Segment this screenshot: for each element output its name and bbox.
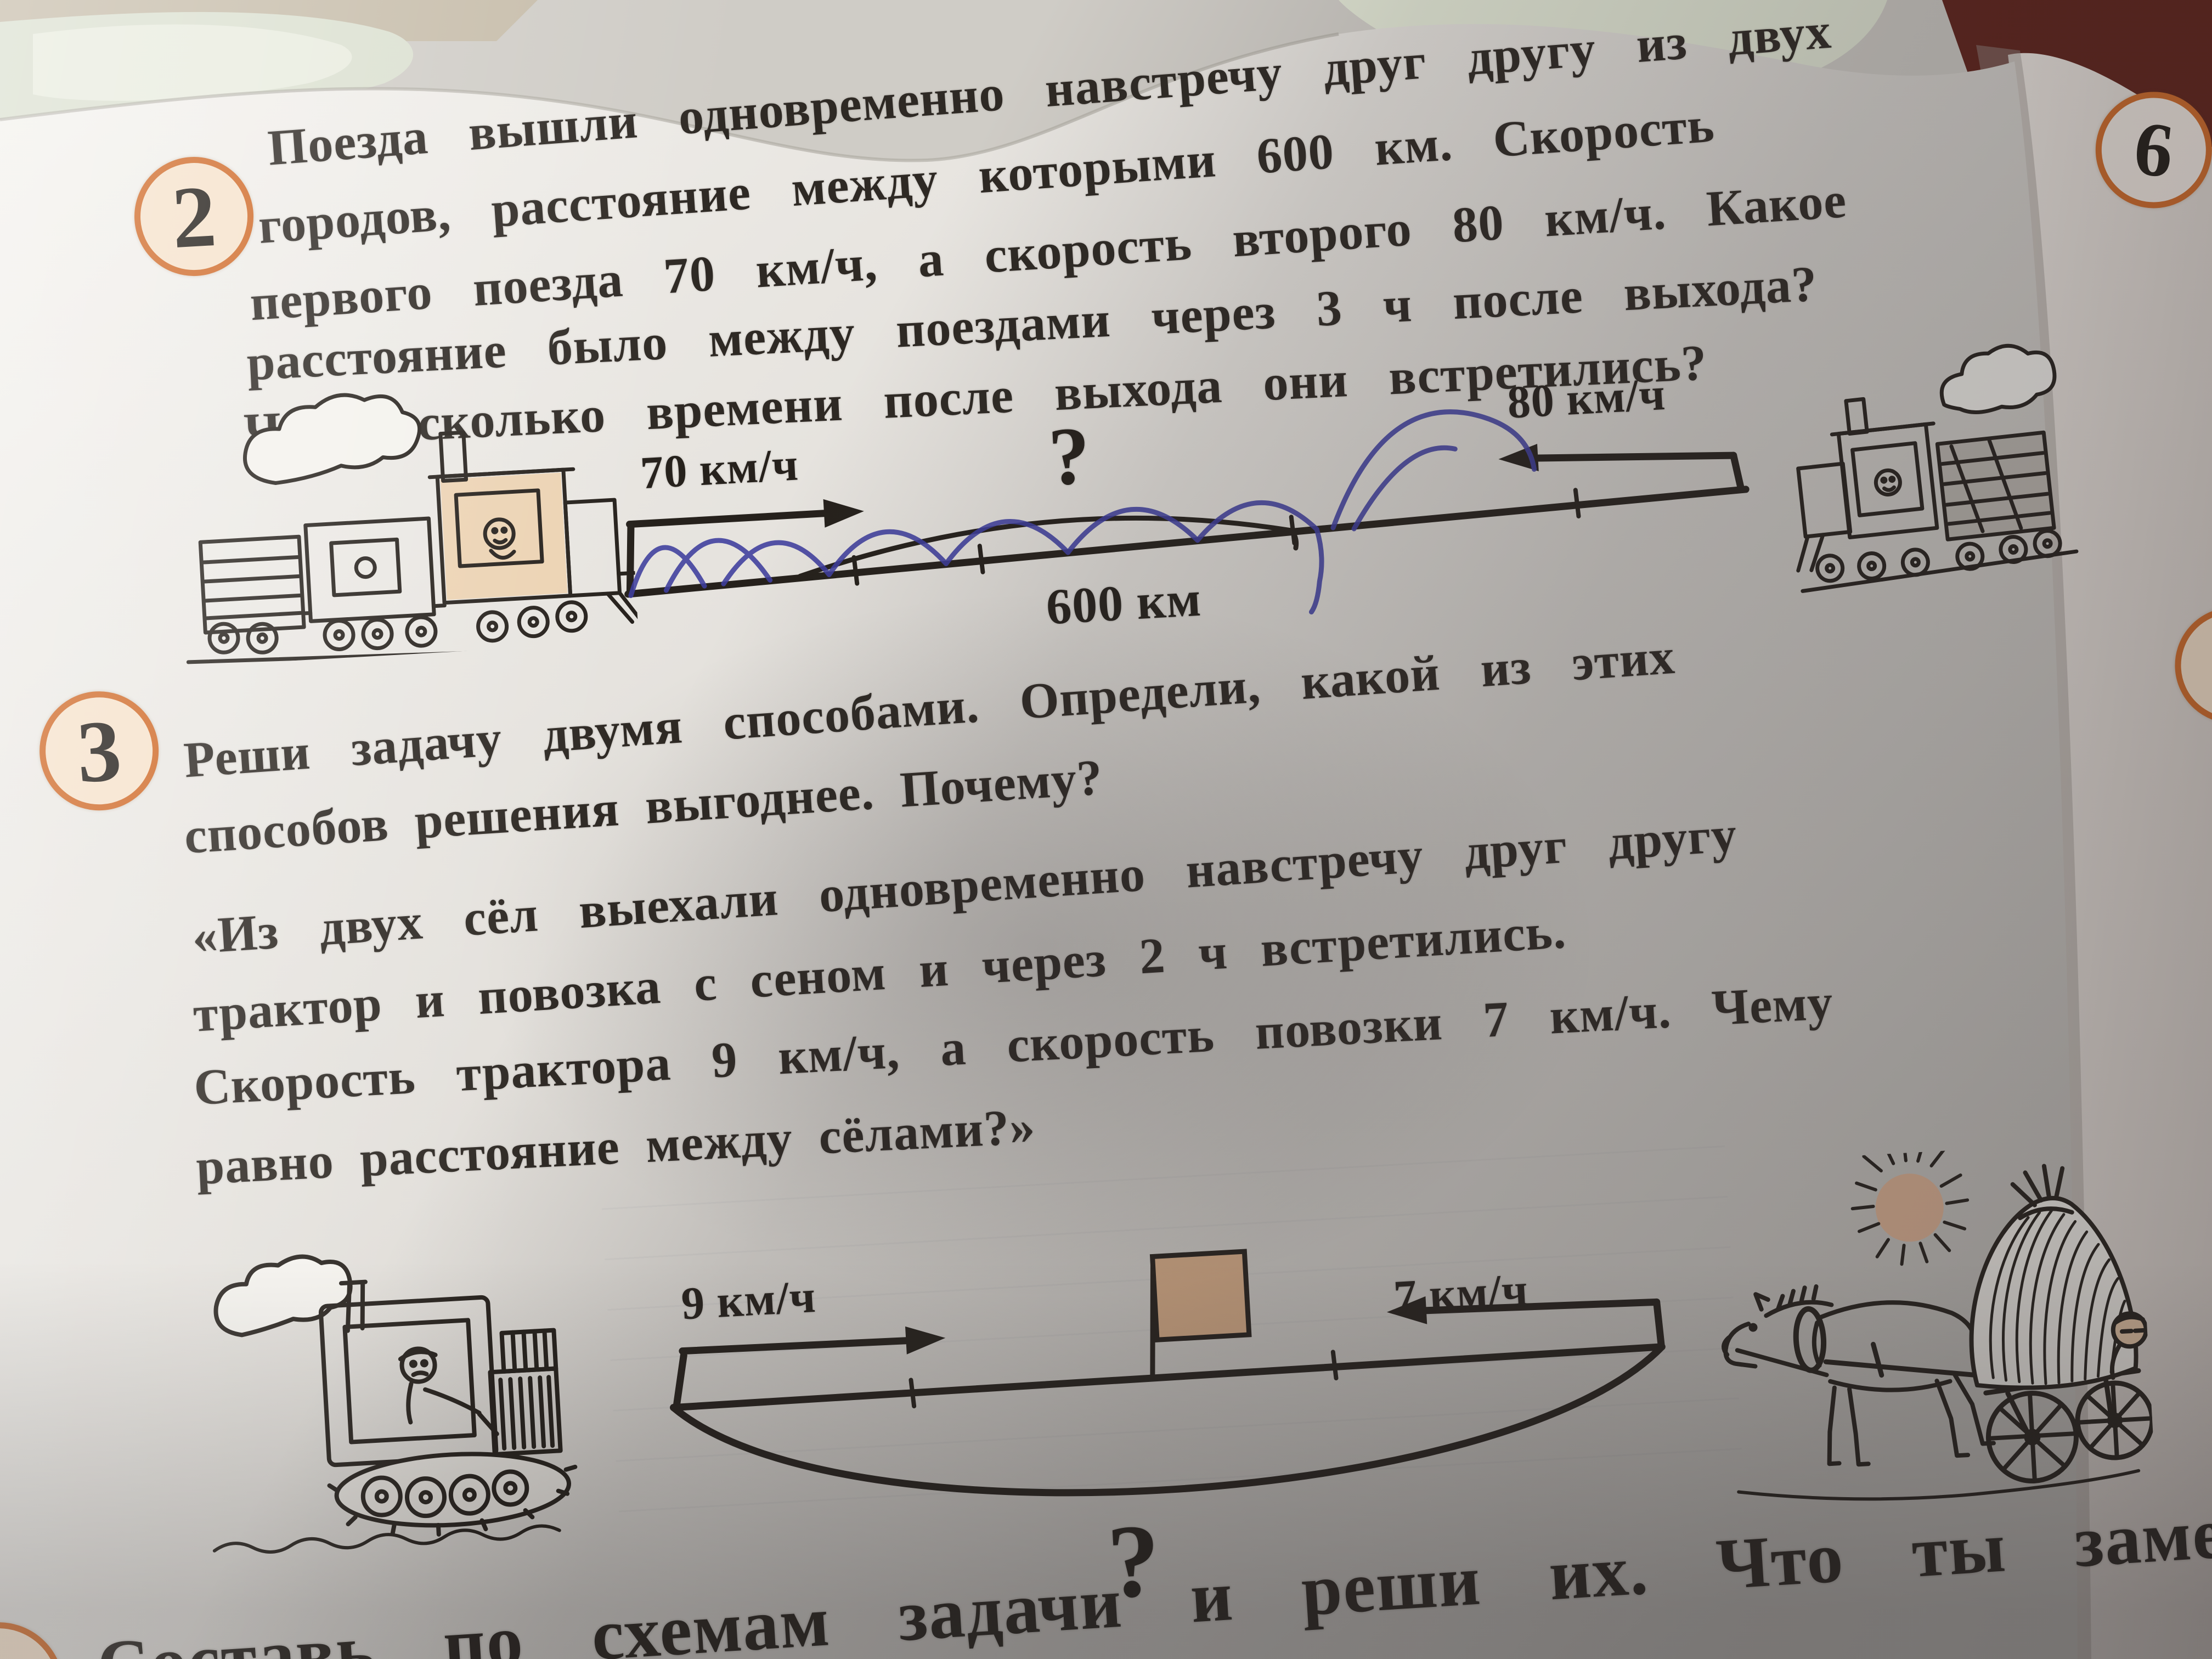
problem3-quote-line-4: равно расстояние между сёлами?» — [195, 1098, 1036, 1195]
speed-label-70: 70 км/ч — [639, 438, 800, 500]
flag-icon — [1153, 1251, 1249, 1340]
task-2-badge: 2 — [131, 154, 257, 279]
steam-train-left-icon — [157, 362, 639, 668]
speed-label-9: 9 км/ч — [680, 1270, 817, 1331]
facing-page-badge-partial — [2172, 604, 2212, 727]
arrow-right-head — [905, 1324, 946, 1355]
total-distance-label: 600 км — [1045, 569, 1203, 636]
textbook-photo: 2 Поезда вышли одновременно навстречу др… — [0, 0, 2212, 1659]
arrow-right-head — [823, 497, 865, 528]
task-3-badge: 3 — [36, 688, 162, 814]
task-2-number: 2 — [170, 171, 218, 261]
sun-icon — [1874, 1172, 1945, 1244]
tractor-icon — [176, 1227, 601, 1565]
segment-question-mark: ? — [1047, 419, 1092, 495]
steam-train-right-icon — [1776, 334, 2080, 594]
page-content: 2 Поезда вышли одновременно навстречу др… — [0, 0, 2212, 1659]
speed-label-7: 7 км/ч — [1392, 1263, 1530, 1324]
speed-label-80: 80 км/ч — [1506, 368, 1667, 430]
total-ellipse-arc — [673, 1347, 1668, 1517]
facing-page-task-6-number: 6 — [2130, 110, 2177, 190]
task-3-number: 3 — [75, 706, 123, 796]
distance-line — [673, 1347, 1662, 1408]
